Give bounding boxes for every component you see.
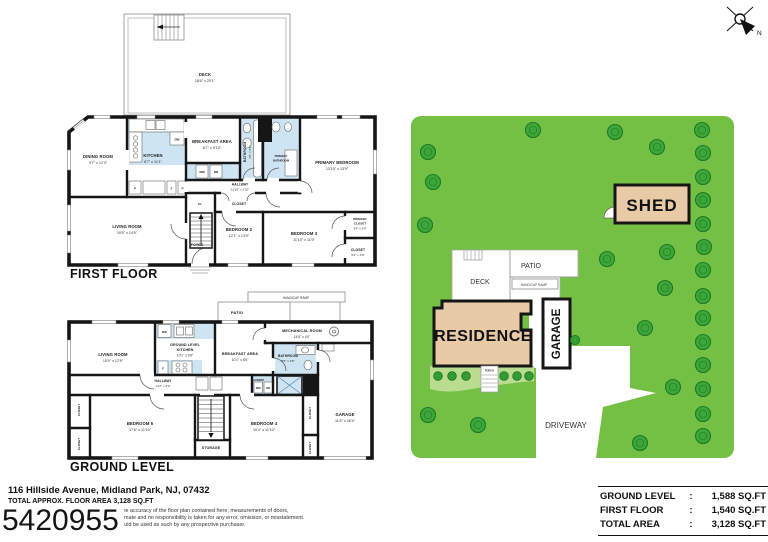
area-row-value: 1,588 SQ.FT [698, 490, 766, 504]
gl-mechanical-label: MECHANICAL ROOM [282, 329, 322, 333]
table-row: GROUND LEVEL : 1,588 SQ.FT [600, 490, 766, 504]
gl-closet-right-1: CLOSET [308, 407, 312, 419]
bush-icon [571, 336, 580, 345]
gl-dryer-label: DR [266, 386, 270, 390]
bush-icon [525, 372, 533, 380]
north-label: N [757, 30, 762, 37]
site-patio-label: PATIO [521, 263, 542, 270]
tree-icon [696, 335, 711, 350]
primary-bedroom-dims: 13'10" x 13'9" [326, 167, 349, 171]
gl-breakfast-dims: 10'1" x 8'6" [232, 358, 250, 362]
area-summary-table: GROUND LEVEL : 1,588 SQ.FT FIRST FLOOR :… [598, 486, 768, 536]
gl-closet-right-2: CLOSET [308, 442, 312, 454]
bedroom2-dims: 12'1" x 13'0" [229, 234, 250, 238]
gl-bathroom-label: BATHROOM [278, 354, 298, 358]
table-row: FIRST FLOOR : 1,540 SQ.FT [600, 504, 766, 518]
gl-living-room-label: LIVING ROOM [98, 352, 128, 357]
tree-icon [600, 252, 615, 267]
bedroom2-label: BEDROOM 2 [226, 227, 253, 232]
shed-label: SHED [626, 196, 677, 215]
foyer-label: FOYER [191, 243, 204, 247]
first-floor-plan: DECK 18'6" x 20'1" DW P F P [67, 14, 376, 281]
bush-icon [434, 372, 442, 380]
ground-level-patio-ramp: HANDICAP RAMP PATIO [218, 292, 345, 322]
hallway-dims: 21'10" x 2'10" [231, 188, 250, 192]
bush-icon [513, 372, 521, 380]
tree-icon [471, 418, 486, 433]
kitchen-dims: 8'7" x 11'1" [144, 160, 163, 164]
gl-kitchen-label-1: GROUND LEVEL [170, 343, 200, 347]
gl-dishwasher-label: DW [162, 330, 167, 334]
gl-living-room-dims: 15'9" x 12'9" [103, 359, 124, 363]
tree-icon [650, 140, 665, 155]
tree-icon [421, 408, 436, 423]
tree-icon [696, 263, 711, 278]
site-deck-label: DECK [470, 279, 490, 286]
property-address: 116 Hillside Avenue, Midland Park, NJ, 0… [8, 485, 428, 496]
bathroom-label: BATHROOM [243, 142, 247, 163]
breakfast-area-label: BREAKFAST AREA [192, 139, 232, 144]
closet-br-dims: 5'4" x 3'8" [351, 253, 365, 257]
bush-icon [462, 372, 470, 380]
gl-bedroom5-dims: 17'6" x 11'10" [129, 428, 152, 432]
porch-label: PORCH [485, 369, 494, 373]
handicap-ramp-label: HANDICAP RAMP [283, 296, 310, 300]
tree-icon [697, 240, 712, 255]
dining-room-label: DINING ROOM [83, 154, 113, 159]
cl-label: CL [198, 202, 202, 206]
gl-bathroom-dims: 8'5" x 9'8" [281, 359, 294, 363]
primary-bathroom-label-2: BATHROOM [273, 159, 290, 163]
primary-closet-dims: 3'4" x 5'0" [353, 227, 366, 231]
fridge-label: F [171, 187, 173, 191]
gl-mechanical-dims: 14'8" x 4'0" [294, 335, 312, 339]
gl-garage-label: GARAGE [336, 412, 355, 417]
driveway-label: DRIVEWAY [545, 421, 587, 430]
bedroom3-label: BEDROOM 3 [291, 231, 318, 236]
area-row-value: 3,128 SQ.FT [698, 518, 766, 532]
tree-icon [608, 125, 623, 140]
first-floor-deck: DECK 18'6" x 20'1" [124, 14, 290, 115]
tree-icon [526, 123, 541, 138]
tree-icon [421, 145, 436, 160]
area-row-label: TOTAL AREA [600, 518, 684, 532]
primary-closet-label-2: CLOSET [354, 222, 366, 226]
area-row-label: FIRST FLOOR [600, 504, 684, 518]
gl-closet-left-1: CLOSET [77, 404, 81, 416]
tree-icon [696, 289, 711, 304]
gl-closet-left-2: CLOSET [77, 438, 81, 450]
plan-number: 5420955 [2, 505, 124, 537]
primary-bedroom-label: PRIMARY BEDROOM [315, 160, 359, 165]
dining-room-dims: 9'7" x 12'3" [89, 161, 108, 165]
site-ramp-label: HANDICAP RAMP [521, 283, 548, 287]
residence-label: RESIDENCE [434, 328, 532, 345]
area-row-colon: : [684, 504, 698, 518]
tree-icon [418, 218, 433, 233]
site-plan: SHED RESIDENCE GARAGE PORCH DECK PATIO H… [411, 116, 734, 458]
patio-label: PATIO [231, 310, 243, 315]
tree-icon [658, 281, 673, 296]
bedroom3-dims: 11'10" x 11'9" [293, 238, 315, 242]
gl-bedroom5-label: BEDROOM 5 [127, 421, 154, 426]
gl-bedroom4-dims: 10'4" x 11'10" [253, 428, 276, 432]
gl-hallway-dims: 14'7" x 3'3" [155, 384, 170, 388]
gl-kitchen-label-2: KITCHEN [177, 348, 194, 352]
primary-closet-label-1: PRIMARY [353, 217, 367, 221]
floorplan-sheet: DECK 18'6" x 20'1" DW P F P [0, 0, 768, 542]
tree-icon [696, 382, 711, 397]
tree-icon [696, 170, 711, 185]
hallway-label: HALLWAY [232, 183, 249, 187]
first-floor-title: FIRST FLOOR [70, 267, 158, 281]
area-row-label: GROUND LEVEL [600, 490, 684, 504]
gl-garage-dims: 11'8" x 26'4" [335, 419, 356, 423]
ground-level-stairs [198, 396, 224, 440]
tree-icon [666, 380, 681, 395]
tree-icon [696, 311, 711, 326]
area-row-colon: : [684, 518, 698, 532]
gl-kitchen-dims: 10'1" x 9'8" [177, 354, 194, 358]
breakfast-area-dims: 8'7" x 9'10" [203, 146, 222, 150]
dishwasher-label: DW [175, 138, 180, 142]
tree-icon [696, 429, 711, 444]
gl-washer-label: WW [256, 386, 261, 390]
kitchen-label: KITCHEN [143, 153, 162, 158]
tree-icon [660, 245, 675, 260]
gl-fridge-label: F [162, 367, 164, 371]
bush-icon [448, 372, 456, 380]
site-garage-label: GARAGE [551, 308, 563, 359]
primary-bathroom-label-1: PRIMARY [275, 154, 288, 158]
tree-icon [638, 321, 653, 336]
washer-label: WM [199, 170, 205, 174]
tree-icon [696, 407, 711, 422]
tree-icon [696, 358, 711, 373]
gl-bedroom4-label: BEDROOM 4 [251, 421, 278, 426]
gl-breakfast-label: BREAKFAST AREA [222, 352, 258, 356]
ground-level-plan: HANDICAP RAMP PATIO DW F [67, 292, 373, 474]
pantry-label: P [134, 187, 136, 191]
area-row-value: 1,540 SQ.FT [698, 504, 766, 518]
porch-walk: PORCH [481, 366, 498, 392]
area-row-colon: : [684, 490, 698, 504]
pantry-label-2: P [181, 187, 183, 191]
tree-icon [696, 217, 711, 232]
tree-icon [633, 436, 648, 451]
bathroom-dims: 4'5" x 8'1" [248, 145, 252, 159]
bush-icon [500, 372, 508, 380]
closet-label: CLOSET [232, 202, 247, 206]
gl-hallway-label: HALLWAY [155, 379, 173, 383]
tree-icon [426, 175, 441, 190]
site-deck-stairs [464, 250, 482, 260]
plan-drawing: DECK 18'6" x 20'1" DW P F P [0, 0, 768, 542]
tree-icon [695, 123, 710, 138]
closet-br-label: CLOSET [351, 248, 366, 252]
compass-rose-icon: N [727, 7, 762, 37]
tree-icon [696, 193, 711, 208]
ground-level-title: GROUND LEVEL [70, 460, 174, 474]
living-room-label: LIVING ROOM [112, 224, 142, 229]
table-row: TOTAL AREA : 3,128 SQ.FT [600, 518, 766, 532]
tree-icon [696, 146, 711, 161]
deck-dims: 18'6" x 20'1" [195, 79, 216, 83]
gl-storage-label: STORAGE [202, 446, 221, 450]
gl-laundry-label: LAUNDRY [252, 378, 265, 382]
living-room-dims: 19'5" x 14'9" [117, 231, 138, 235]
deck-label: DECK [199, 72, 211, 77]
